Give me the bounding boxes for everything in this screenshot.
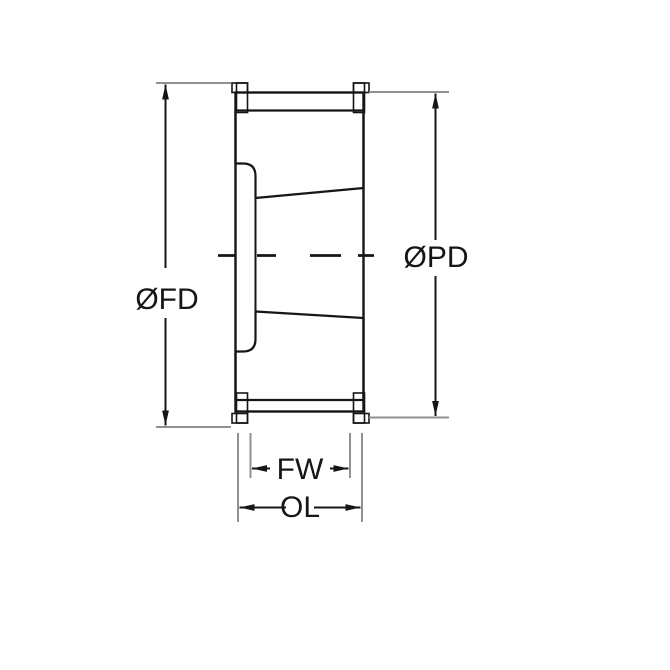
flange-diameter-label: ØFD (135, 283, 198, 316)
flange-diameter-dimension: ØFD (135, 85, 198, 426)
overall-length-dimension: OL (240, 491, 361, 524)
flange-bottom-left-lip (232, 414, 248, 424)
flange-bottom-left-bar (237, 393, 248, 423)
flange-top-right-lip (354, 83, 370, 93)
flange-top-left-lip (232, 83, 248, 93)
pulley-technical-drawing: ØFD ØPD FW OL (0, 0, 670, 670)
overall-length-label: OL (280, 491, 320, 524)
flange-bottom-right (354, 393, 370, 423)
flange-top-right (354, 83, 370, 113)
flange-bottom-right-lip (354, 414, 370, 424)
face-width-dimension: FW (252, 453, 349, 486)
flange-top-left-bar (237, 83, 248, 113)
pitch-diameter-dimension: ØPD (403, 94, 468, 417)
pitch-diameter-label: ØPD (403, 241, 468, 274)
face-width-label: FW (277, 453, 324, 486)
pulley-cross-section (218, 83, 374, 423)
canvas: ØFD ØPD FW OL (0, 0, 670, 670)
